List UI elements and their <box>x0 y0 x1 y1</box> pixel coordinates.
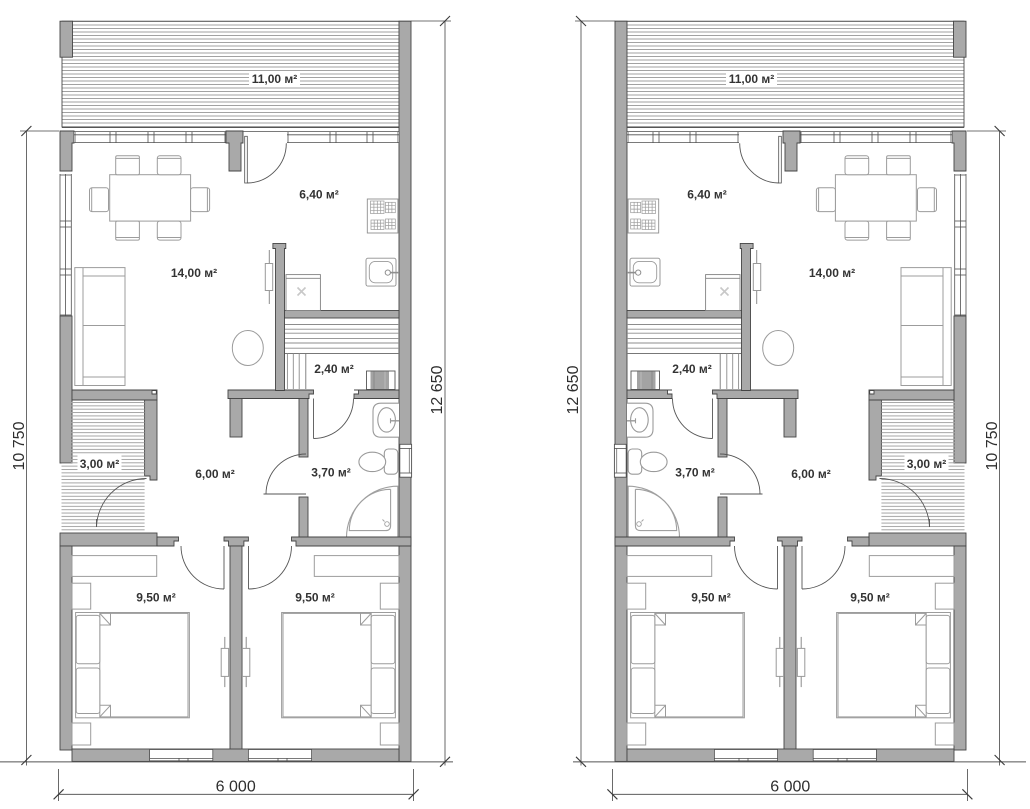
svg-text:6,40 м²: 6,40 м² <box>299 188 339 202</box>
svg-text:14,00 м²: 14,00 м² <box>171 266 217 280</box>
svg-text:6,00 м²: 6,00 м² <box>195 467 235 481</box>
svg-text:10 750: 10 750 <box>984 421 1001 470</box>
svg-text:3,00 м²: 3,00 м² <box>907 457 947 471</box>
svg-text:2,40 м²: 2,40 м² <box>672 362 712 376</box>
svg-text:9,50 м²: 9,50 м² <box>295 591 335 605</box>
svg-text:6 000: 6 000 <box>770 779 810 796</box>
svg-text:3,70 м²: 3,70 м² <box>675 466 715 480</box>
svg-text:6,40 м²: 6,40 м² <box>687 188 727 202</box>
svg-text:11,00 м²: 11,00 м² <box>729 72 775 86</box>
svg-text:10 750: 10 750 <box>11 421 28 470</box>
svg-text:9,50 м²: 9,50 м² <box>136 591 176 605</box>
svg-text:3,70 м²: 3,70 м² <box>311 466 351 480</box>
svg-text:6,00 м²: 6,00 м² <box>791 467 831 481</box>
svg-text:14,00 м²: 14,00 м² <box>809 266 855 280</box>
svg-text:9,50 м²: 9,50 м² <box>850 591 890 605</box>
svg-text:9,50 м²: 9,50 м² <box>691 591 731 605</box>
svg-text:12 650: 12 650 <box>565 365 582 414</box>
svg-text:11,00 м²: 11,00 м² <box>252 72 298 86</box>
svg-text:6 000: 6 000 <box>216 779 256 796</box>
svg-text:12 650: 12 650 <box>429 365 446 414</box>
svg-text:2,40 м²: 2,40 м² <box>314 362 354 376</box>
svg-text:3,00 м²: 3,00 м² <box>80 457 120 471</box>
